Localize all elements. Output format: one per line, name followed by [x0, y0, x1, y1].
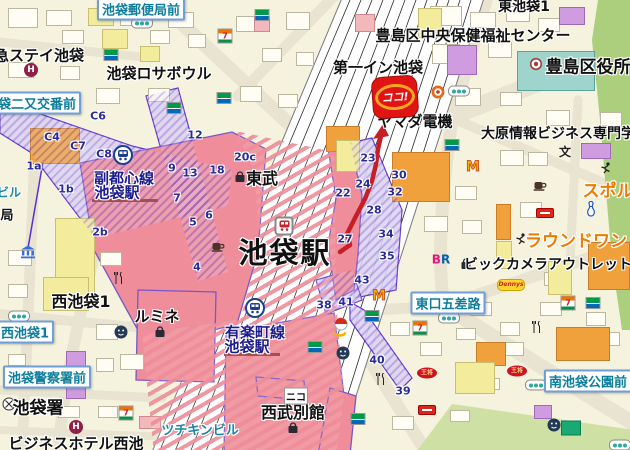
government-office-icon — [530, 58, 543, 71]
gyoza-restaurant-icon: 王将 — [507, 366, 527, 377]
road-sign-label: 池袋郵便局前 — [97, 0, 185, 21]
familymart-icon — [365, 310, 380, 322]
toshima-ward-office-label: 豊島区役所 — [546, 53, 630, 78]
tsuchikin-bldg-label: ツチキンビル — [161, 420, 239, 439]
restaurant-fork-icon — [376, 373, 386, 385]
round-one-label: ラウンドワン — [525, 227, 627, 252]
metro-station-icon — [245, 298, 265, 318]
exit-number-label: 40 — [369, 354, 384, 367]
road-sign-label: 袋二又交番前 — [0, 92, 81, 115]
road-sign-label: 南池袋公園前 — [544, 370, 630, 393]
familymart-icon — [255, 9, 270, 21]
exit-number-label: 18 — [209, 164, 224, 177]
dennys-icon: Dennys — [497, 279, 525, 291]
baskin-robbins-icon: BR — [432, 259, 450, 260]
higashi-ikebukuro-label: 東池袋1 — [498, 0, 550, 16]
restaurant-face-icon — [336, 346, 350, 360]
exit-number-label: 4 — [193, 261, 201, 274]
metro-station-icon — [113, 145, 133, 165]
shop-yellow-arc-icon — [334, 332, 347, 339]
restaurant-fork-icon — [114, 272, 124, 284]
exit-number-label: 34 — [378, 228, 393, 241]
yurakucho-station-label: 池袋駅 — [224, 336, 269, 357]
seven-eleven-icon: 7 — [218, 29, 233, 44]
exit-number-label: 12 — [187, 129, 202, 142]
exit-number-label: 1a — [26, 160, 41, 173]
exit-number-label: C4 — [44, 131, 60, 144]
exit-number-label: C7 — [70, 140, 86, 153]
shop-red-circle-icon — [335, 318, 348, 331]
exit-number-label: 9 — [168, 162, 176, 175]
mcdonalds-icon: M — [372, 289, 386, 303]
mcdonalds-icon: M — [466, 160, 480, 174]
familymart-icon — [104, 49, 119, 61]
tobu-label: 東武 — [246, 165, 278, 189]
bowling-pin-icon — [586, 201, 596, 217]
exit-number-label: 24 — [355, 178, 370, 191]
familymart-icon — [308, 341, 323, 353]
road-sign-label: 東口五差路 — [410, 292, 485, 315]
hotel-tokyu-stay-label: 急ステイ池袋 — [0, 45, 84, 66]
familymart-icon — [351, 413, 366, 425]
ohara-college-label: 大原情報ビジネス専門学 — [481, 123, 630, 143]
map-label: ニコ — [284, 388, 308, 405]
familymart-icon — [586, 297, 601, 309]
exit-number-label: 28 — [366, 204, 381, 217]
exit-number-label: 39 — [395, 385, 410, 398]
traffic-signal-icon — [609, 440, 630, 450]
bank-icon — [20, 246, 36, 259]
exit-number-label: 41 — [338, 296, 353, 309]
red-shop-sign-icon — [418, 405, 436, 415]
exit-number-label: 32 — [387, 186, 402, 199]
exit-number-label: 20c — [234, 151, 256, 164]
seven-eleven-icon: 7 — [561, 296, 576, 311]
road-sign-label: 西池袋1 — [0, 321, 54, 344]
health-center-label: 豊島区中央保健福祉センター — [375, 25, 570, 46]
familymart-icon — [445, 139, 460, 151]
red-shop-sign-icon — [536, 208, 554, 218]
green-store-icon — [561, 421, 581, 436]
department-store-bag-icon — [287, 422, 300, 434]
exit-number-label: 30 — [391, 169, 406, 182]
exit-number-label: 22 — [335, 187, 350, 200]
lumine-label: ルミネ — [134, 306, 179, 327]
exit-number-label: 38 — [316, 299, 331, 312]
coffee-shop-icon — [534, 181, 547, 191]
exit-number-label: 35 — [379, 250, 394, 263]
seven-eleven-icon: 7 — [413, 321, 428, 336]
exit-number-label: 43 — [354, 274, 369, 287]
familymart-icon — [217, 92, 232, 104]
exit-number-label: C6 — [90, 110, 106, 123]
rosa-bowl-label: 池袋ロサボウル — [106, 63, 211, 84]
map-label: ビル — [0, 184, 21, 201]
shop-donut-icon — [431, 85, 445, 99]
map-label: 局 — [0, 205, 13, 224]
exit-number-label: 23 — [360, 152, 375, 165]
sporto-label: スポル — [583, 177, 630, 202]
traffic-signal-icon — [448, 86, 470, 97]
department-store-bag-icon — [154, 326, 167, 338]
destination-marker-label: ココ! — [374, 83, 416, 112]
exit-number-label: 2b — [92, 226, 108, 239]
destination-marker: ココ! — [371, 74, 420, 119]
bic-camera-outlet-label: ビックカメラアウトレット — [464, 254, 630, 274]
road-sign-label: 池袋警察署前 — [3, 366, 91, 389]
sports-person-icon — [600, 162, 612, 174]
restaurant-fork-icon — [532, 321, 542, 333]
department-store-bag-icon — [234, 171, 247, 183]
ikebukuro-station-label: 池袋駅 — [238, 230, 331, 272]
exit-number-label: 7 — [173, 192, 181, 205]
map-canvas[interactable]: ココ! 急ステイ池袋池袋ロサボウル第一イン池袋豊島区中央保健福祉センター東池袋1… — [0, 0, 630, 450]
familymart-icon — [167, 102, 182, 114]
coffee-shop-icon — [212, 242, 225, 252]
exit-number-label: 6 — [205, 209, 213, 222]
restaurant-face-icon — [114, 325, 128, 339]
exit-number-label: 13 — [182, 167, 197, 180]
exit-number-label: 27 — [337, 233, 352, 246]
fukutoshin-station-label: 池袋駅 — [94, 182, 139, 203]
police-station-label: 池袋署 — [13, 394, 64, 419]
seven-eleven-icon: 7 — [119, 406, 134, 421]
nishi-ikebukuro-label: 西池袋1 — [51, 288, 110, 312]
exit-number-label: 5 — [189, 216, 197, 229]
business-hotel-label: ビジネスホテル西池 — [8, 433, 143, 450]
exit-number-label: C8 — [96, 148, 112, 161]
gyoza-restaurant-icon: 王将 — [417, 368, 437, 379]
restaurant-face-icon — [547, 418, 561, 432]
exit-number-label: 1b — [58, 183, 74, 196]
